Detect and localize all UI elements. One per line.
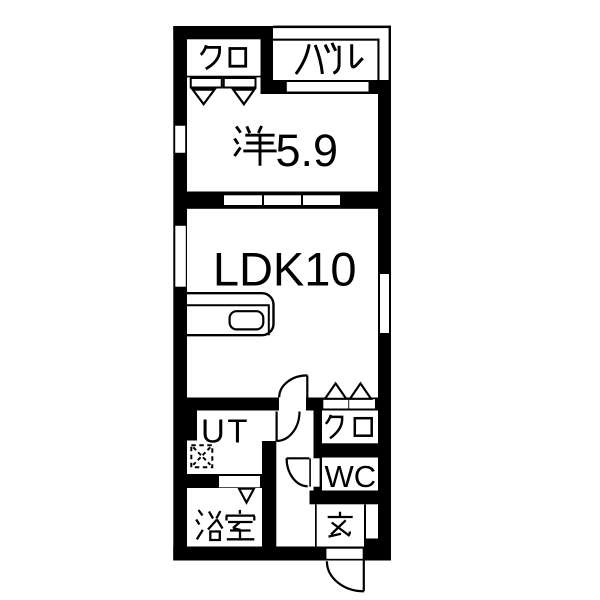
svg-text:LDK10: LDK10: [213, 243, 357, 296]
svg-text:5.9: 5.9: [276, 125, 339, 176]
svg-text:UT: UT: [201, 413, 250, 450]
svg-text:WC: WC: [324, 459, 376, 494]
